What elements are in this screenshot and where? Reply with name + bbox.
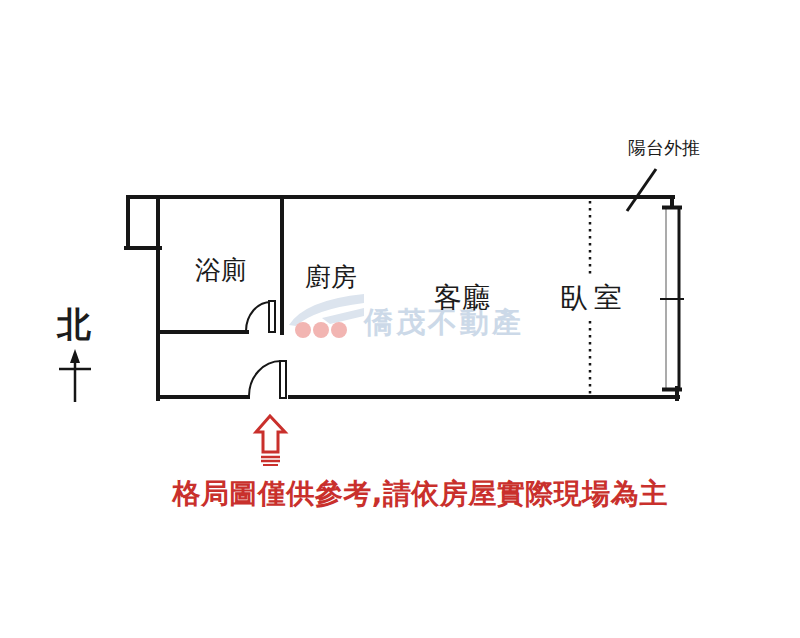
- entrance-door-leaf: [280, 361, 286, 398]
- watermark-swoosh-sliver: [322, 308, 364, 324]
- floor-plan-canvas: 僑茂不動產: [0, 0, 800, 638]
- watermark-logo: [289, 294, 364, 338]
- watermark-dot: [313, 322, 329, 338]
- north-label: 北: [57, 307, 91, 341]
- entrance-door-arc: [249, 361, 281, 396]
- north-arrow-head: [70, 349, 80, 363]
- north-arrow-icon: [59, 349, 91, 402]
- bathroom-door-arc: [246, 302, 271, 331]
- entrance-door: [249, 361, 286, 398]
- room-label-bedroom: 臥室: [560, 284, 628, 312]
- window: [660, 208, 684, 390]
- room-label-bathroom: 浴廁: [195, 257, 247, 283]
- balcony-pointer-line: [627, 169, 656, 211]
- floor-plan: [0, 0, 800, 638]
- watermark-dot: [295, 322, 311, 338]
- room-label-living-room: 客廳: [434, 284, 490, 312]
- entrance-arrow-icon: [256, 416, 285, 465]
- room-label-kitchen: 廚房: [305, 264, 357, 290]
- bathroom-door: [246, 301, 275, 332]
- entrance-arrow-outline: [256, 416, 285, 452]
- bathroom-door-leaf: [269, 301, 275, 332]
- balcony-note: 陽台外推: [628, 139, 700, 157]
- watermark-dot: [331, 322, 347, 338]
- disclaimer-text: 格局圖僅供參考,請依房屋實際現場為主: [172, 480, 668, 508]
